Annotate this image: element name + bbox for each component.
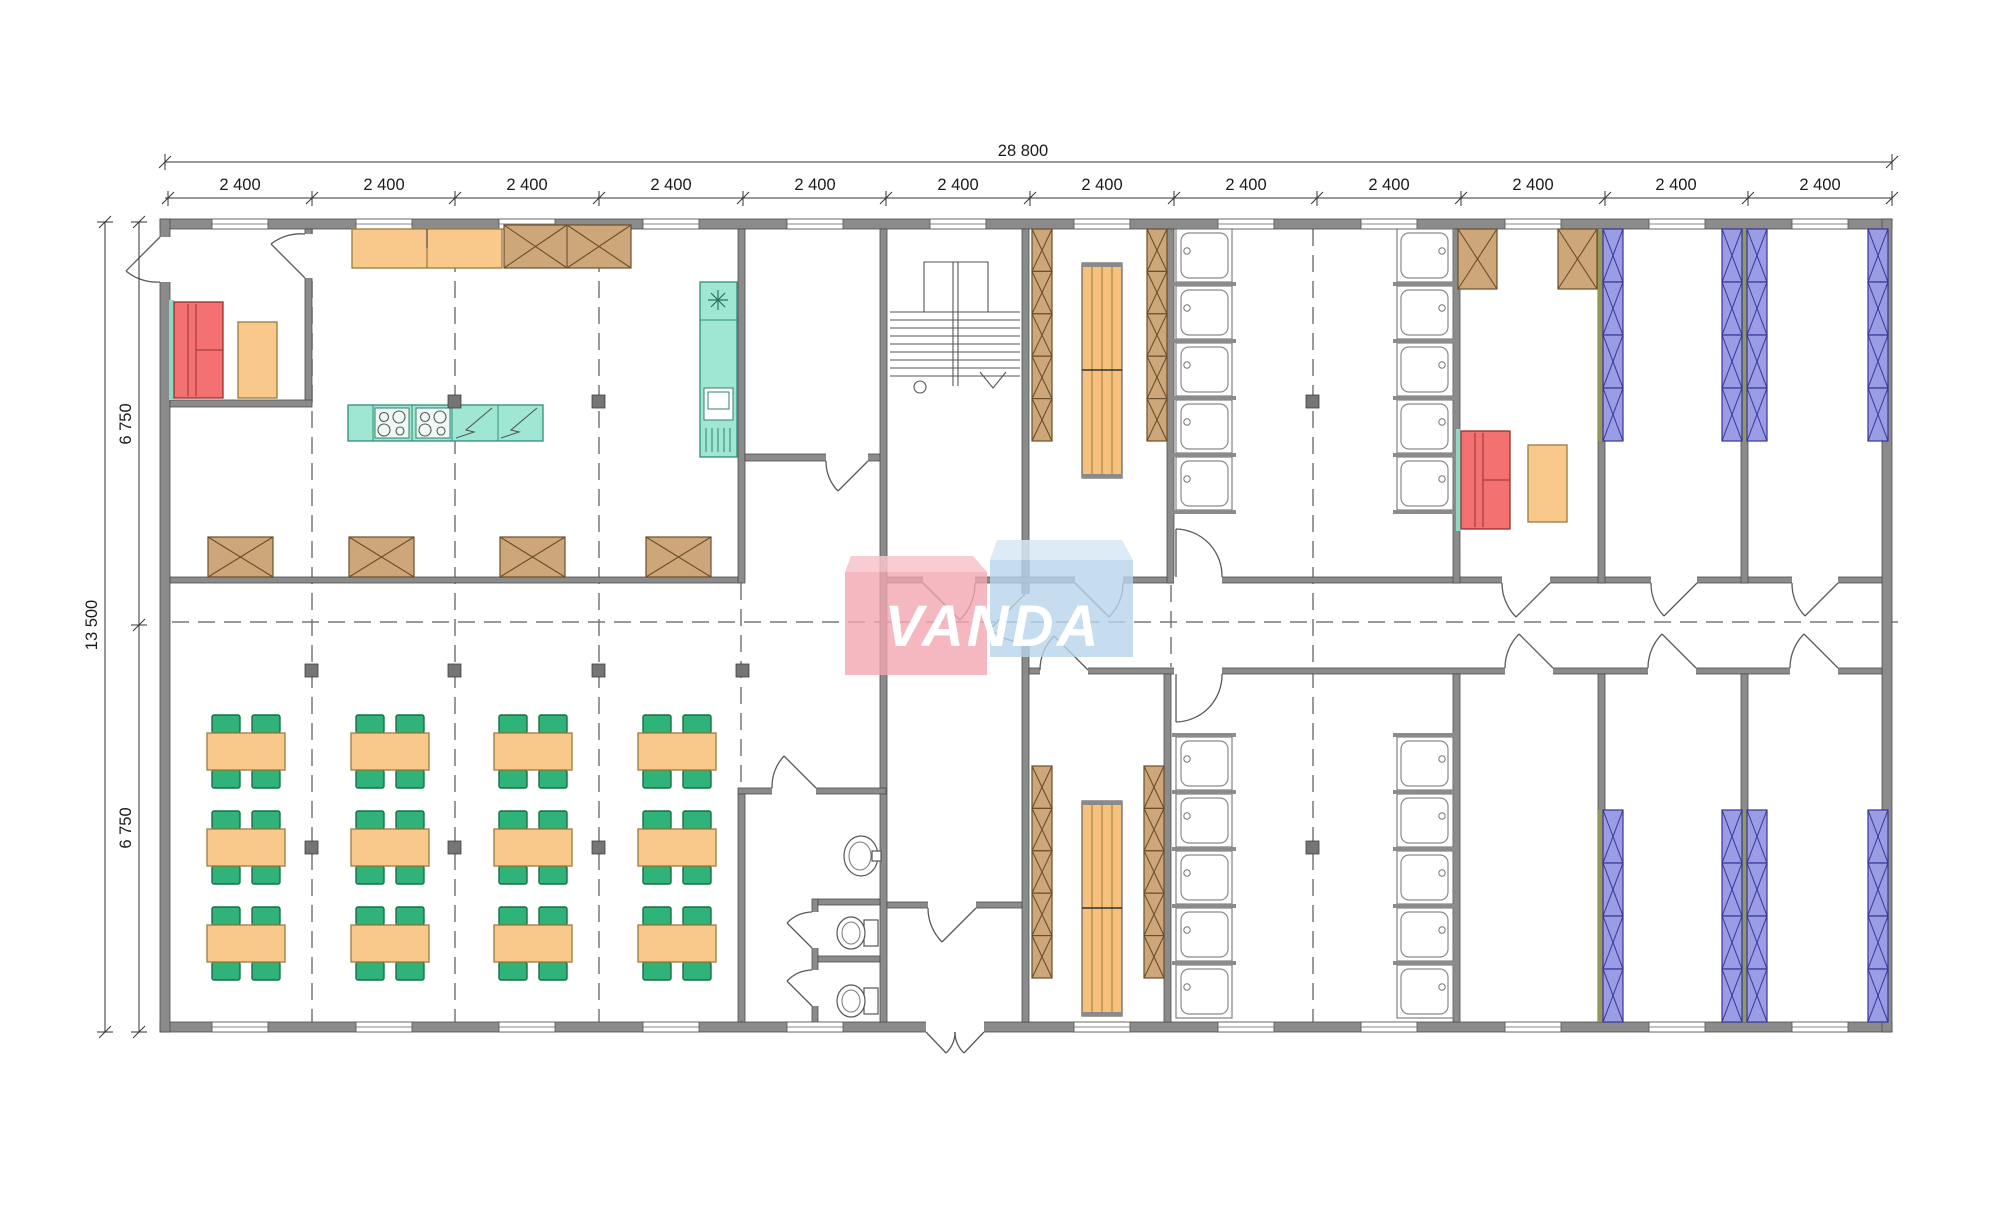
dim-segment-label: 2 400 [1081,176,1122,194]
bunk-bed-column [1603,229,1623,441]
lounge-room [1456,229,1597,531]
wall-cabinet-crossed [504,225,631,268]
stair-direction-arrow [980,372,1006,388]
folded-tables-row [208,537,711,577]
exterior-wall-left [160,219,170,1032]
dim-left-lower-label: 6 750 [117,807,135,848]
locker-column [1147,229,1167,441]
shower-room-top [1172,229,1457,514]
toilet [837,985,878,1017]
dining-area [207,715,716,980]
locker [1458,229,1497,289]
dining-table-set [638,907,716,980]
bunk-bed-column [1603,810,1623,1022]
dining-table-set [351,907,429,980]
dim-segment-label: 2 400 [219,176,260,194]
dim-segment-label: 2 400 [1655,176,1696,194]
fridge-unit [700,282,737,457]
dining-table-set [351,811,429,884]
changing-room-bottom [1032,766,1164,1016]
bunk-bed-column [1868,810,1888,1022]
dim-segment-label: 2 400 [363,176,404,194]
dining-table-set [638,811,716,884]
entrance-double-door [926,1032,955,1053]
dim-segment-label: 2 400 [1225,176,1266,194]
entry-room [169,300,277,400]
exterior-wall-bottom [160,1022,1892,1032]
dining-table-set [494,715,572,788]
dim-segment-label: 2 400 [937,176,978,194]
locker [1558,229,1597,289]
dining-wall [170,577,738,583]
locker-column [1144,766,1164,978]
dim-total-width-label: 28 800 [998,142,1048,160]
bunk-bed-column [1747,229,1767,441]
dining-table-set [351,715,429,788]
bunk-bed-column [1747,810,1767,1022]
coffee-table [238,322,277,398]
stair-start-marker [914,381,926,393]
dim-segment-label: 2 400 [794,176,835,194]
dim-segment-label: 2 400 [1512,176,1553,194]
dining-table-set [638,715,716,788]
dim-segment-label: 2 400 [1368,176,1409,194]
locker-column [1032,229,1052,441]
bunk-bed-column [1868,229,1888,441]
staircase [890,262,1020,393]
dim-segment-label: 2 400 [1799,176,1840,194]
vanda-logo: VANDA [845,540,1133,675]
washbasin [844,836,881,876]
bench [1082,263,1122,478]
dim-segment-label: 2 400 [506,176,547,194]
corridor-wall-lower [1029,668,1882,674]
locker-column [1032,766,1052,978]
coffee-table [1528,445,1567,522]
logo-blue-top-face [990,540,1133,560]
dining-table-set [207,715,285,788]
changing-room-top [1032,229,1167,478]
bunk-bed-column [1722,229,1742,441]
toilet [837,917,878,949]
sanitary-block [837,836,881,1017]
bunk-bed-column [1722,810,1742,1022]
bench [1082,801,1122,1016]
dim-left-upper-label: 6 750 [117,403,135,444]
dining-table-set [494,907,572,980]
kitchen-island [348,405,543,441]
logo-pink-top-face [845,556,987,572]
logo-text: VANDA [885,594,1102,659]
dim-segment-label: 2 400 [650,176,691,194]
dining-table-set [494,811,572,884]
floor-plan-canvas: 28 800 2 400 2 400 2 400 2 400 2 400 2 4… [0,0,2000,1216]
dining-table-set [207,811,285,884]
exterior-wall-top [160,219,1892,229]
floor-plan-page: 28 800 2 400 2 400 2 400 2 400 2 400 2 4… [0,0,2000,1216]
dim-total-height-label: 13 500 [83,600,101,650]
shower-room-bottom [1172,733,1457,1018]
dining-table-set [207,907,285,980]
